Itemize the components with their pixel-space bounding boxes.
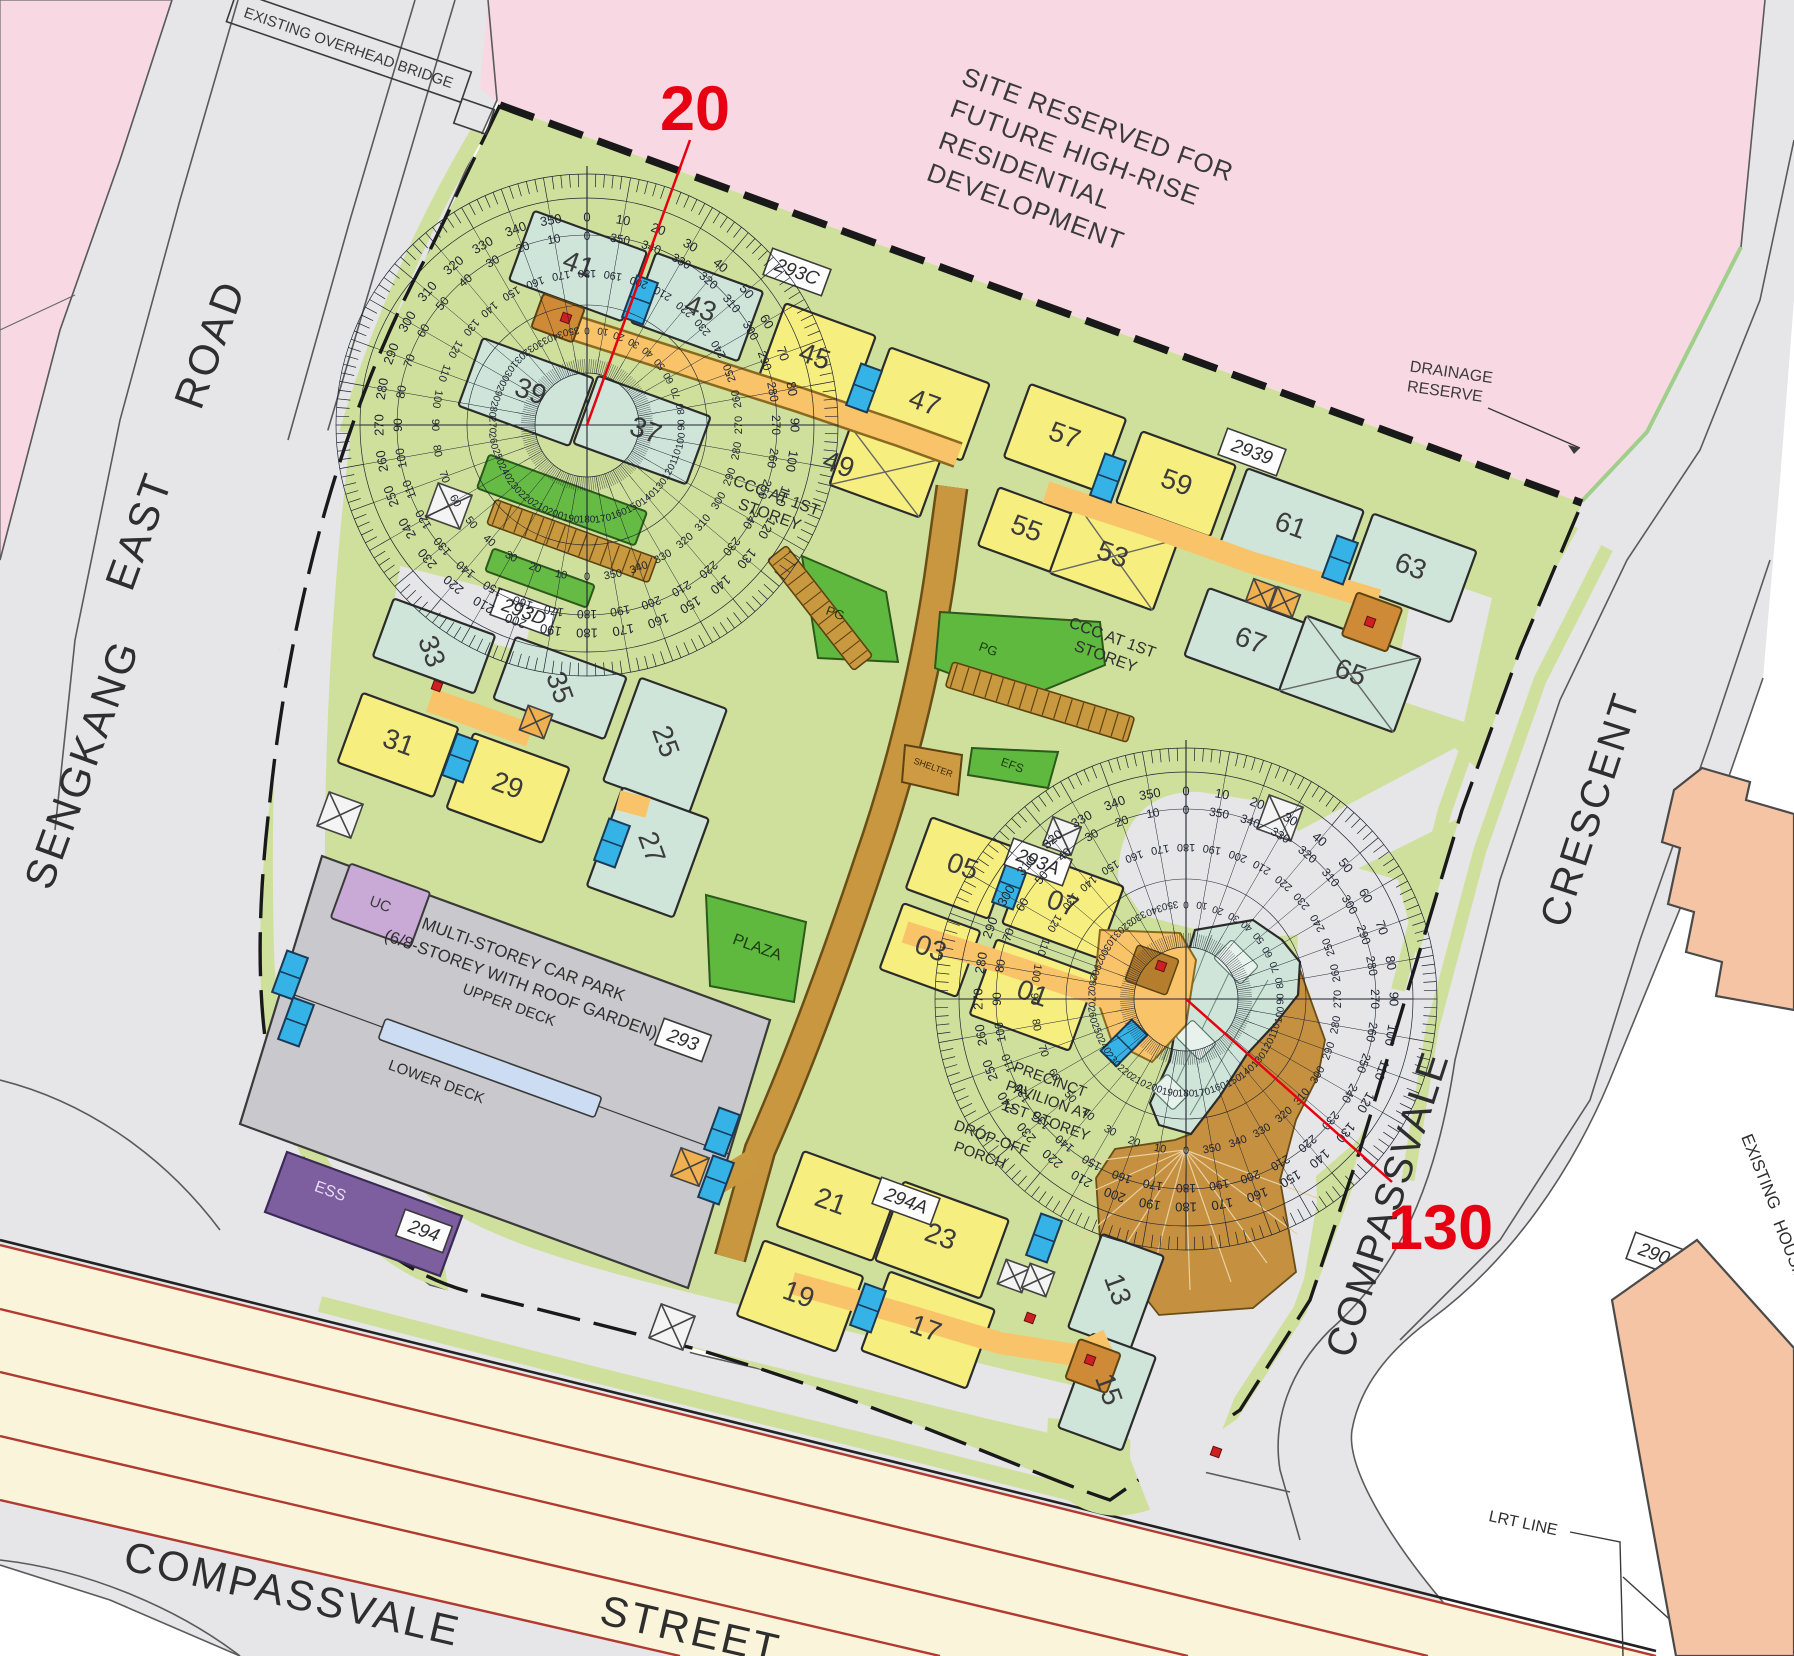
svg-text:80: 80 bbox=[992, 958, 1008, 974]
svg-text:90: 90 bbox=[429, 419, 441, 431]
svg-text:10: 10 bbox=[546, 231, 562, 247]
svg-text:0: 0 bbox=[584, 324, 590, 335]
svg-text:180: 180 bbox=[1175, 1200, 1197, 1215]
svg-text:180: 180 bbox=[578, 267, 596, 279]
svg-text:80: 80 bbox=[1029, 1018, 1043, 1032]
svg-text:90: 90 bbox=[1276, 993, 1287, 1005]
svg-text:90: 90 bbox=[1028, 993, 1040, 1005]
svg-text:90: 90 bbox=[788, 418, 803, 432]
svg-text:90: 90 bbox=[391, 418, 405, 432]
svg-text:270: 270 bbox=[1368, 989, 1382, 1009]
svg-text:0: 0 bbox=[1183, 803, 1190, 817]
svg-text:180: 180 bbox=[579, 515, 596, 526]
svg-text:0: 0 bbox=[583, 209, 590, 224]
svg-text:270: 270 bbox=[769, 415, 783, 435]
svg-text:90: 90 bbox=[990, 992, 1004, 1006]
svg-text:180: 180 bbox=[576, 626, 598, 641]
svg-text:180: 180 bbox=[1178, 1089, 1195, 1100]
svg-text:90: 90 bbox=[1387, 992, 1402, 1006]
svg-text:180: 180 bbox=[1176, 1181, 1196, 1195]
svg-text:0: 0 bbox=[1183, 1145, 1189, 1157]
svg-text:180: 180 bbox=[577, 607, 597, 621]
svg-text:270: 270 bbox=[371, 414, 386, 436]
svg-text:0: 0 bbox=[1183, 898, 1189, 909]
svg-text:80: 80 bbox=[1382, 954, 1399, 971]
svg-text:80: 80 bbox=[393, 384, 409, 400]
svg-text:270: 270 bbox=[1085, 991, 1096, 1008]
svg-text:20: 20 bbox=[660, 74, 730, 144]
svg-text:10: 10 bbox=[615, 211, 632, 228]
svg-text:90: 90 bbox=[677, 419, 688, 431]
svg-text:130: 130 bbox=[1388, 1193, 1493, 1263]
svg-text:80: 80 bbox=[783, 380, 800, 397]
svg-text:270: 270 bbox=[486, 417, 497, 434]
svg-text:0: 0 bbox=[1182, 783, 1189, 798]
svg-text:10: 10 bbox=[1153, 1142, 1167, 1156]
svg-text:0: 0 bbox=[584, 571, 590, 583]
svg-text:180: 180 bbox=[1177, 841, 1195, 853]
svg-text:270: 270 bbox=[733, 416, 745, 434]
svg-text:270: 270 bbox=[1332, 990, 1344, 1008]
svg-text:0: 0 bbox=[584, 229, 591, 243]
svg-text:270: 270 bbox=[970, 988, 985, 1010]
svg-text:80: 80 bbox=[430, 444, 444, 458]
svg-text:10: 10 bbox=[1214, 785, 1231, 802]
svg-text:10: 10 bbox=[1145, 805, 1161, 821]
svg-text:10: 10 bbox=[554, 568, 568, 582]
